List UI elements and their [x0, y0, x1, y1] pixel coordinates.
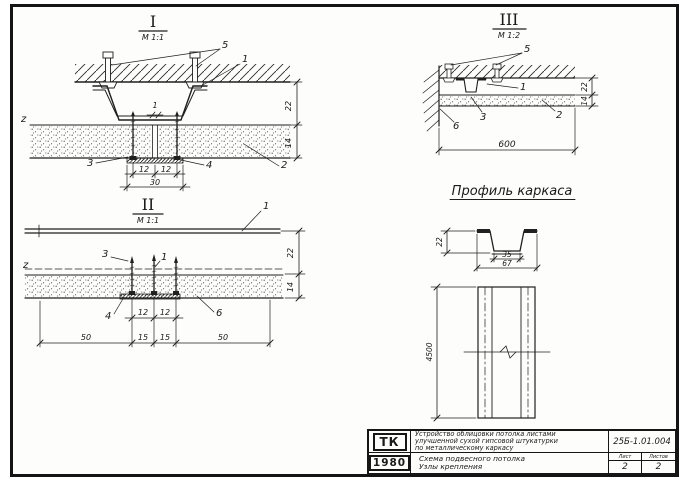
callout-3: 3 — [102, 249, 128, 261]
callout-4: 4 — [181, 160, 212, 171]
svg-text:22: 22 — [284, 101, 293, 111]
svg-text:600: 600 — [498, 140, 515, 150]
svg-text:12: 12 — [160, 308, 170, 317]
sheets-total: 2 — [642, 461, 675, 473]
svg-text:15: 15 — [160, 333, 170, 342]
svg-text:4: 4 — [206, 160, 212, 171]
sheet-title-line: Узлы крепления — [419, 463, 482, 471]
svg-text:22: 22 — [435, 237, 444, 247]
callout-5: 5 — [451, 44, 530, 65]
svg-text:4: 4 — [105, 311, 111, 322]
svg-text:1: 1 — [520, 82, 526, 93]
joint-cover-strip — [127, 158, 183, 163]
gypsum-board — [30, 125, 290, 158]
sheet-number: 2 — [609, 461, 642, 473]
bottom-dimensions: 12 12 50 15 15 50 — [37, 299, 273, 347]
callout-6: 6 — [440, 109, 459, 132]
year-stamp: 1980 — [369, 455, 410, 471]
callout-6: 6 — [197, 296, 222, 319]
vertical-dimensions: 22 14 — [576, 75, 598, 109]
svg-text:6: 6 — [216, 308, 222, 319]
svg-text:14: 14 — [580, 96, 589, 106]
sheet-label: Лист — [609, 453, 642, 461]
section-1-numeral: I — [150, 12, 156, 31]
callout-4: 4 — [105, 297, 124, 322]
callout-1-screw: 1 — [155, 252, 167, 267]
bottom-dimensions: 12 12 30 — [120, 163, 190, 191]
frame-profile-drawing: Профиль каркаса 22 35 — [420, 182, 600, 427]
svg-text:5: 5 — [222, 40, 228, 51]
sheet-title-cell: Схема подвесного потолка Узлы крепления — [411, 453, 609, 473]
svg-text:3: 3 — [87, 158, 93, 169]
section-1-drawing: I М 1:1 — [15, 8, 315, 198]
callout-5: 5 — [112, 40, 228, 66]
svg-text:1: 1 — [242, 54, 248, 65]
svg-text:50: 50 — [81, 333, 91, 342]
project-title-cell: Устройство облицовки потолка листами улу… — [411, 431, 609, 453]
profile-plan-view — [464, 287, 550, 418]
vertical-dimensions: 22 14 — [284, 79, 302, 161]
section-2-drawing: II М 1:1 — [15, 195, 315, 360]
svg-text:14: 14 — [286, 282, 295, 292]
axis-z-label: z — [22, 260, 29, 271]
axis-z-label: z — [20, 114, 27, 125]
svg-text:35: 35 — [502, 250, 512, 259]
svg-text:67: 67 — [502, 259, 512, 268]
svg-text:50: 50 — [218, 333, 228, 342]
org-cell: ТК — [369, 431, 411, 453]
callout-3: 3 — [87, 157, 128, 169]
svg-text:12: 12 — [161, 165, 171, 174]
sheet-count-cell: Лист Листов 2 2 — [609, 453, 675, 473]
svg-text:14: 14 — [284, 138, 293, 148]
svg-text:12: 12 — [138, 308, 148, 317]
svg-text:1: 1 — [161, 252, 167, 263]
section-3-numeral: III — [500, 10, 519, 29]
doc-number-cell: 25Б-1.01.004 — [609, 431, 675, 453]
gypsum-board — [439, 95, 575, 106]
joint-cover-strip — [120, 294, 180, 299]
vertical-dimensions: 22 14 — [281, 228, 305, 301]
svg-text:3: 3 — [480, 112, 486, 123]
section-2-numeral: II — [142, 195, 155, 214]
org-stamp: ТК — [373, 433, 407, 451]
profile-length-dim: 4500 — [425, 284, 476, 421]
svg-text:22: 22 — [580, 82, 589, 92]
drawing-sheet: I М 1:1 — [0, 0, 685, 489]
hat-profile-section — [456, 78, 486, 96]
section-1-scale: М 1:1 — [142, 33, 164, 42]
section-3-drawing: III М 1:2 — [400, 8, 670, 168]
frame-profile-title: Профиль каркаса — [452, 184, 573, 199]
doc-number: 25Б-1.01.004 — [613, 437, 671, 447]
section-2-scale: М 1:1 — [137, 216, 159, 225]
svg-text:4500: 4500 — [425, 342, 434, 361]
svg-text:1: 1 — [263, 201, 269, 212]
gap-dimension: 1 — [147, 101, 163, 118]
wall-section — [423, 66, 439, 131]
svg-text:15: 15 — [138, 333, 148, 342]
callout-1: 1 — [487, 82, 526, 93]
svg-text:2: 2 — [556, 110, 562, 121]
section-3-scale: М 1:2 — [498, 31, 520, 40]
svg-text:3: 3 — [102, 249, 108, 260]
svg-text:12: 12 — [139, 165, 149, 174]
project-title-line: по металлическому каркасу — [415, 445, 513, 452]
svg-text:6: 6 — [453, 121, 459, 132]
title-block: ТК Устройство облицовки потолка листами … — [367, 429, 677, 475]
svg-text:22: 22 — [286, 248, 295, 258]
year-cell: 1980 — [369, 453, 411, 473]
slab-hatch — [439, 65, 575, 78]
callout-1-top: 1 — [242, 201, 269, 231]
svg-text:1: 1 — [152, 101, 157, 110]
sheets-label: Листов — [642, 453, 675, 461]
svg-text:5: 5 — [524, 44, 530, 55]
svg-text:30: 30 — [150, 178, 160, 187]
svg-text:2: 2 — [281, 160, 287, 171]
